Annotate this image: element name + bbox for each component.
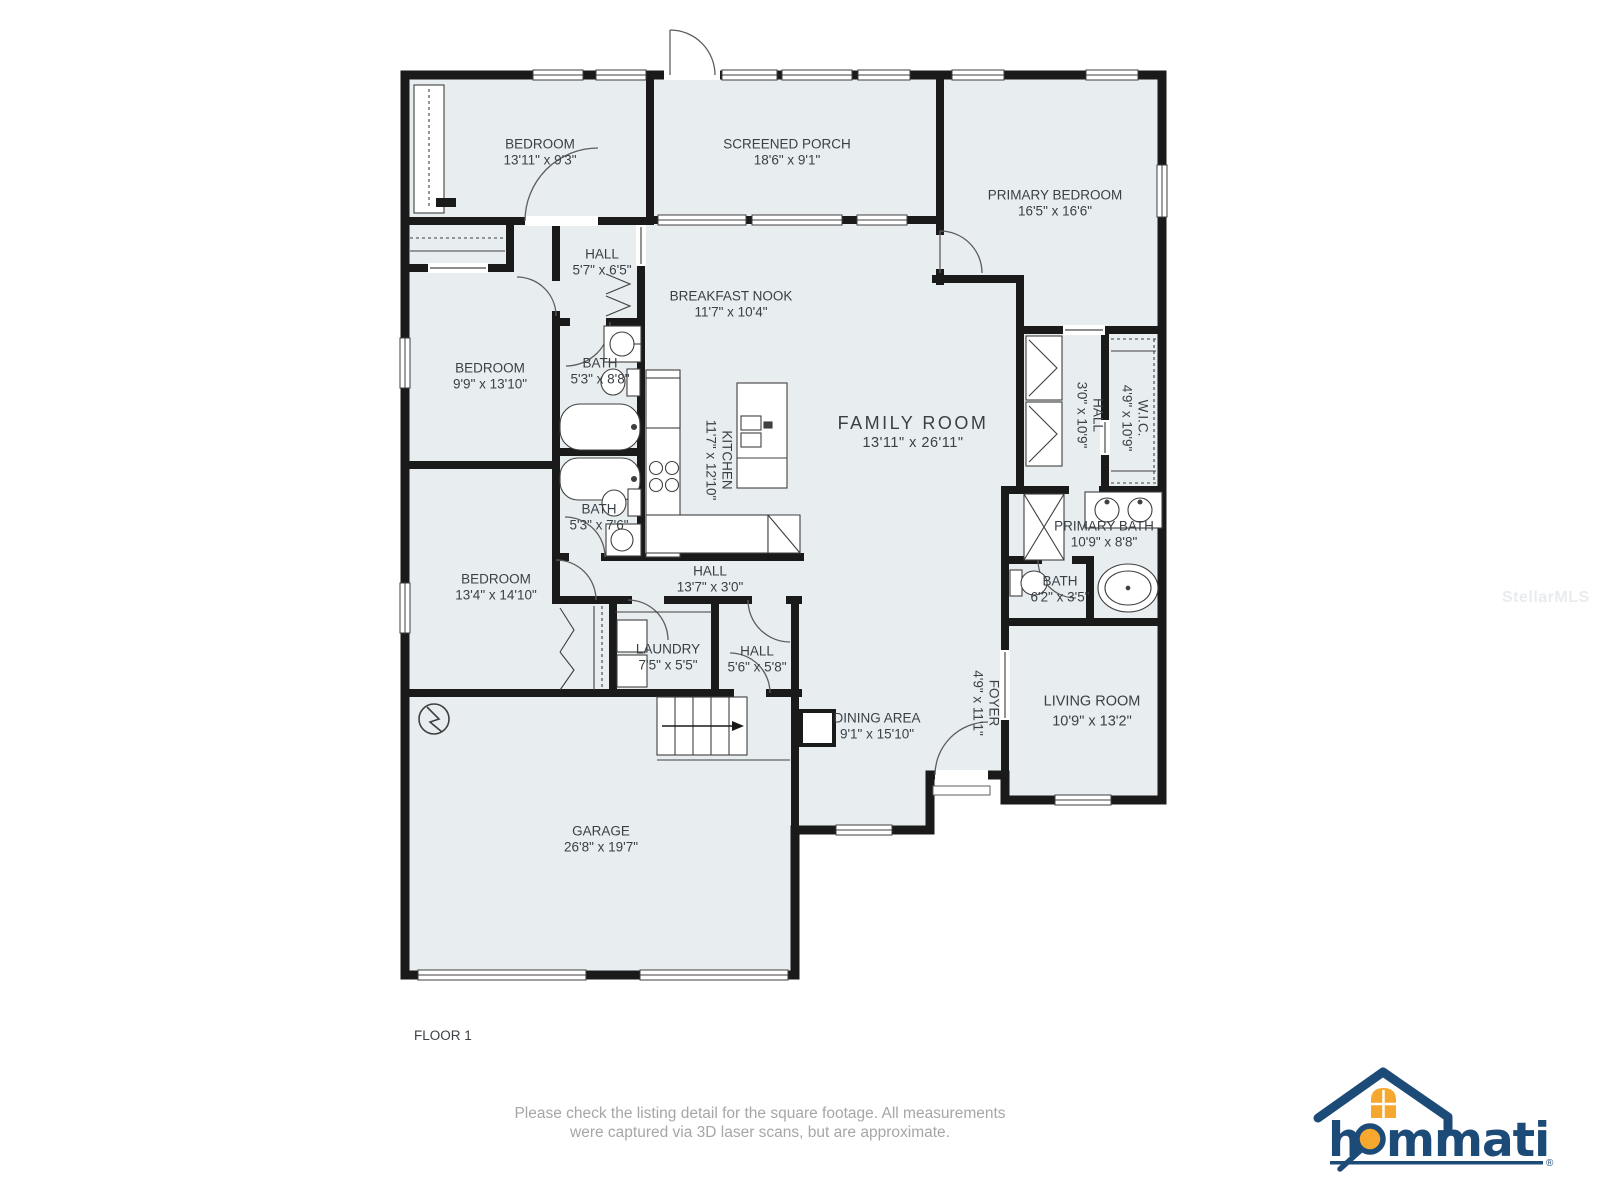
room-dims: 7'5" x 5'5": [636, 658, 700, 674]
room-name: BEDROOM: [455, 572, 537, 588]
logo-text-rest: mmati: [1386, 1113, 1549, 1168]
room-dims: 26'8" x 19'7": [564, 840, 638, 856]
room-label-primary-bedroom: PRIMARY BEDROOM 16'5" x 16'6": [988, 188, 1123, 221]
room-label-breakfast-nook: BREAKFAST NOOK 11'7" x 10'4": [670, 289, 793, 322]
floor-plan-page: h mmati ® BEDROOM 13'11" x 9'3" SCREENED…: [0, 0, 1600, 1200]
room-label-bedroom-3: BEDROOM 13'4" x 14'10": [455, 572, 537, 605]
room-label-bedroom-1: BEDROOM 13'11" x 9'3": [503, 137, 576, 170]
room-dims: 4'9" x 11'1": [969, 670, 985, 736]
room-name: BATH: [569, 502, 628, 518]
room-name: HALL: [1089, 382, 1105, 449]
room-label-screened-porch: SCREENED PORCH 18'6" x 9'1": [723, 137, 851, 170]
room-label-dining-area: DINING AREA 9'1" x 15'10": [833, 711, 920, 744]
room-label-family-room: FAMILY ROOM 13'11" x 26'11": [838, 413, 989, 453]
disclaimer-line-1: Please check the listing detail for the …: [360, 1104, 1160, 1123]
room-label-living-room: LIVING ROOM 10'9" x 13'2": [1044, 692, 1141, 731]
room-name: FAMILY ROOM: [838, 413, 989, 435]
room-name: SCREENED PORCH: [723, 137, 851, 153]
room-name: W.I.C.: [1134, 385, 1150, 452]
room-label-bedroom-2: BEDROOM 9'9" x 13'10": [453, 361, 527, 394]
room-label-hall-1: HALL 5'7" x 6'5": [572, 247, 631, 280]
room-dims: 13'7" x 3'0": [677, 580, 744, 596]
room-dims: 5'3" x 7'6": [569, 518, 628, 534]
room-name: BATH: [570, 356, 629, 372]
room-dims: 13'11" x 26'11": [838, 435, 989, 453]
hommati-logo: h mmati ®: [1318, 1072, 1554, 1169]
room-dims: 10'9" x 8'8": [1054, 535, 1154, 551]
room-label-wic: W.I.C. 4'9" x 10'9": [1118, 385, 1151, 452]
room-label-primary-bath: PRIMARY BATH 10'9" x 8'8": [1054, 519, 1154, 552]
room-name: BATH: [1030, 574, 1089, 590]
room-label-bath-2: BATH 5'3" x 7'6": [569, 502, 628, 535]
room-label-bath-1: BATH 5'3" x 8'8": [570, 356, 629, 389]
room-label-garage: GARAGE 26'8" x 19'7": [564, 824, 638, 857]
room-dims: 16'5" x 16'6": [988, 204, 1123, 220]
room-dims: 3'0" x 10'9": [1073, 382, 1089, 449]
room-name: GARAGE: [564, 824, 638, 840]
room-label-laundry: LAUNDRY 7'5" x 5'5": [636, 642, 700, 675]
room-name: LIVING ROOM: [1044, 692, 1141, 712]
room-label-hall-4: HALL 5'6" x 5'8": [727, 644, 786, 677]
room-dims: 9'1" x 15'10": [833, 727, 920, 743]
room-label-foyer: FOYER 4'9" x 11'1": [969, 670, 1002, 736]
room-label-bath-3: BATH 6'2" x 3'5": [1030, 574, 1089, 607]
room-name: HALL: [727, 644, 786, 660]
room-name: PRIMARY BEDROOM: [988, 188, 1123, 204]
room-dims: 13'11" x 9'3": [503, 153, 576, 169]
room-dims: 10'9" x 13'2": [1044, 712, 1141, 732]
room-dims: 4'9" x 10'9": [1118, 385, 1134, 452]
disclaimer-line-2: were captured via 3D laser scans, but ar…: [360, 1123, 1160, 1142]
floor-number-label: FLOOR 1: [414, 1028, 472, 1043]
front-step: [933, 786, 990, 795]
room-name: FOYER: [985, 670, 1001, 736]
room-name: DINING AREA: [833, 711, 920, 727]
room-name: KITCHEN: [718, 420, 734, 501]
room-dims: 5'6" x 5'8": [727, 660, 786, 676]
room-name: BEDROOM: [503, 137, 576, 153]
floor-plan-drawing: h mmati ®: [0, 0, 1600, 1200]
room-dims: 6'2" x 3'5": [1030, 590, 1089, 606]
room-name: HALL: [572, 247, 631, 263]
room-dims: 11'7" x 12'10": [702, 420, 718, 501]
room-name: PRIMARY BATH: [1054, 519, 1154, 535]
room-dims: 9'9" x 13'10": [453, 377, 527, 393]
room-name: HALL: [677, 564, 744, 580]
stellar-mls-watermark: StellarMLS: [1502, 589, 1590, 607]
room-dims: 5'7" x 6'5": [572, 263, 631, 279]
room-name: BREAKFAST NOOK: [670, 289, 793, 305]
room-dims: 11'7" x 10'4": [670, 305, 793, 321]
logo-registered-mark: ®: [1546, 1158, 1554, 1169]
room-label-kitchen: KITCHEN 11'7" x 12'10": [702, 420, 735, 501]
room-dims: 18'6" x 9'1": [723, 153, 851, 169]
room-name: LAUNDRY: [636, 642, 700, 658]
disclaimer-text: Please check the listing detail for the …: [360, 1104, 1160, 1142]
room-label-hall-suite: HALL 3'0" x 10'9": [1073, 382, 1106, 449]
room-label-hall-3: HALL 13'7" x 3'0": [677, 564, 744, 597]
room-dims: 13'4" x 14'10": [455, 588, 537, 604]
room-dims: 5'3" x 8'8": [570, 372, 629, 388]
room-name: BEDROOM: [453, 361, 527, 377]
